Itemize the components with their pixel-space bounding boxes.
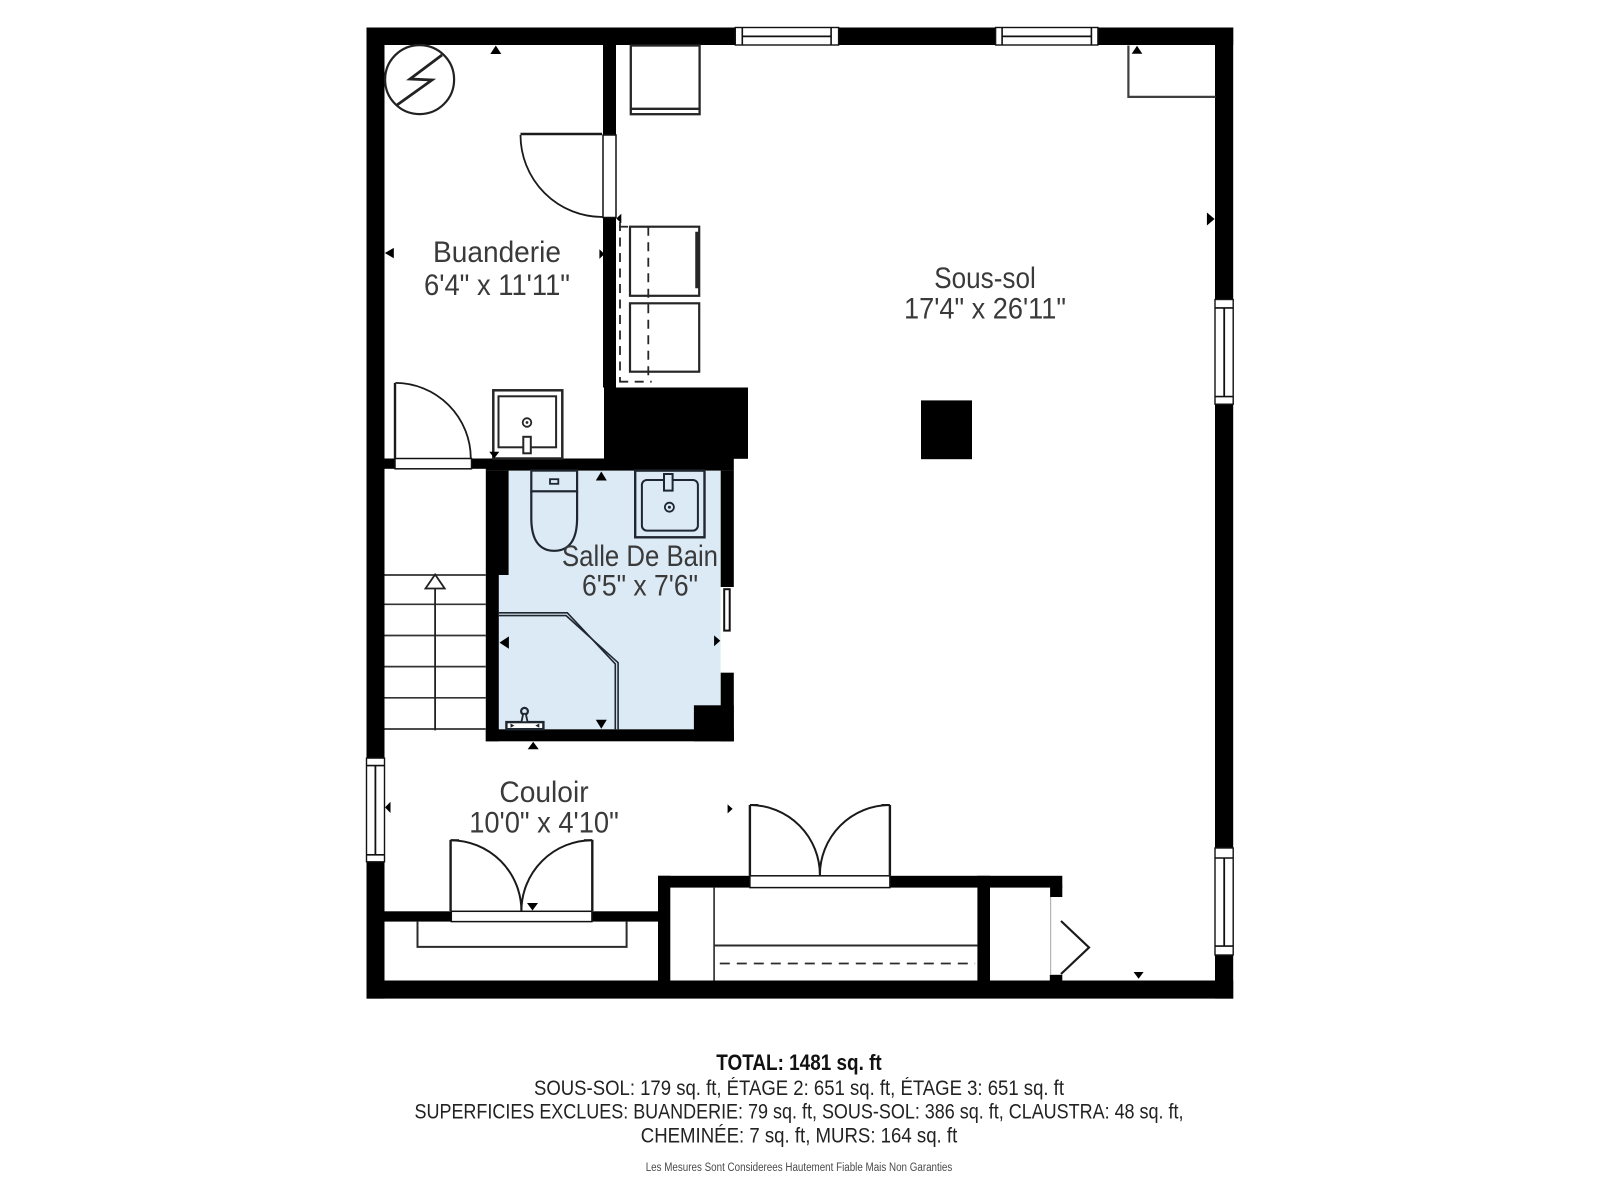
svg-text:Couloir: Couloir bbox=[499, 776, 588, 809]
svg-text:Buanderie: Buanderie bbox=[433, 236, 561, 269]
svg-text:TOTAL: 1481 sq. ft: TOTAL: 1481 sq. ft bbox=[716, 1050, 882, 1075]
svg-text:SOUS-SOL: 179 sq. ft, ÉTAGE 2:: SOUS-SOL: 179 sq. ft, ÉTAGE 2: 651 sq. f… bbox=[534, 1077, 1064, 1100]
svg-text:CHEMINÉE: 7 sq. ft, MURS: 164: CHEMINÉE: 7 sq. ft, MURS: 164 sq. ft bbox=[641, 1124, 958, 1147]
svg-text:10'0" x 4'10": 10'0" x 4'10" bbox=[469, 806, 619, 839]
svg-text:Salle De Bain: Salle De Bain bbox=[562, 540, 718, 573]
svg-text:Les Mesures Sont Considerees H: Les Mesures Sont Considerees Hautement F… bbox=[646, 1162, 953, 1174]
svg-text:17'4" x 26'11": 17'4" x 26'11" bbox=[904, 293, 1066, 326]
svg-text:SUPERFICIES EXCLUES: BUANDERIE: SUPERFICIES EXCLUES: BUANDERIE: 79 sq. f… bbox=[415, 1101, 1184, 1124]
svg-text:6'4" x 11'11": 6'4" x 11'11" bbox=[424, 269, 570, 302]
svg-text:Sous-sol: Sous-sol bbox=[934, 262, 1036, 295]
svg-text:6'5" x 7'6": 6'5" x 7'6" bbox=[582, 570, 698, 603]
